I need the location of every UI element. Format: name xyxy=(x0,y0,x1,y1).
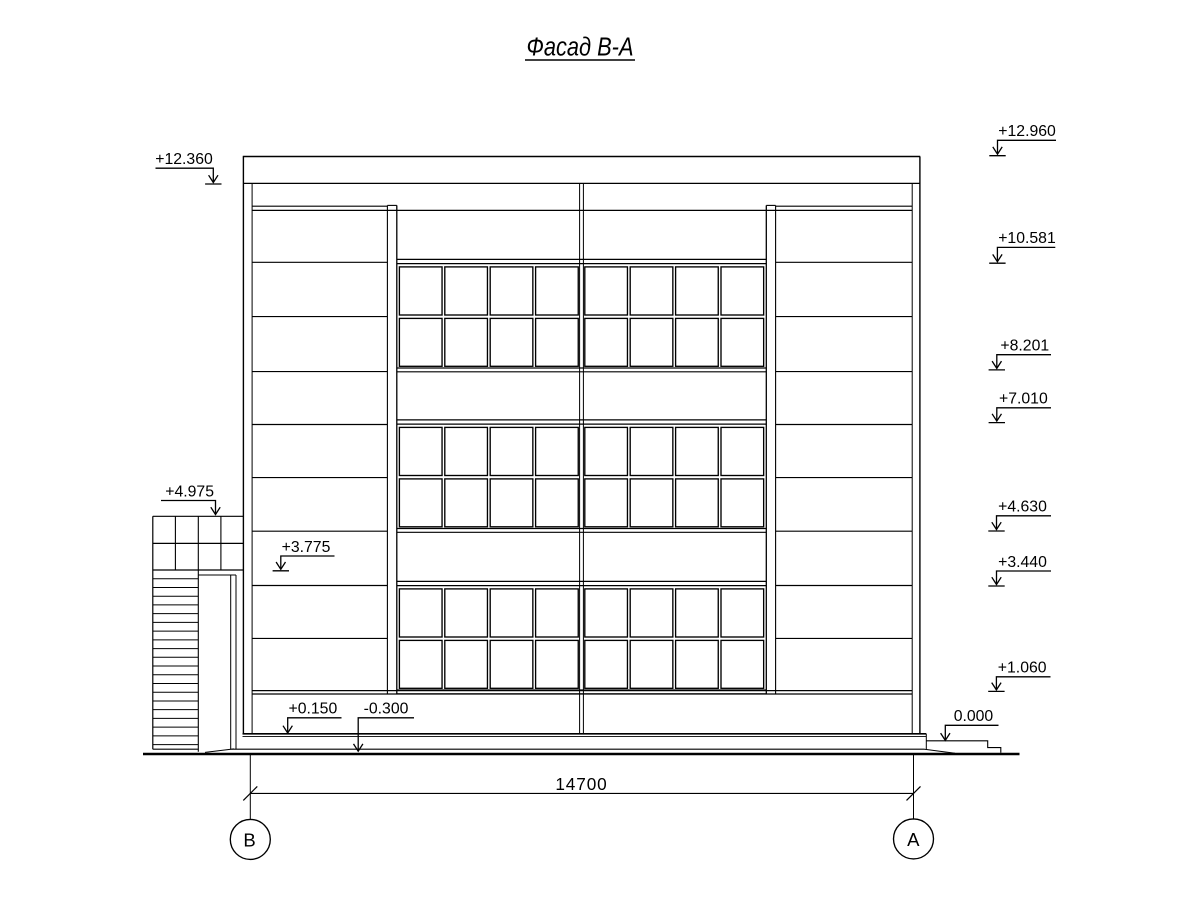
svg-text:+7.010: +7.010 xyxy=(999,391,1048,408)
svg-text:+4.975: +4.975 xyxy=(165,483,214,500)
svg-text:+3.775: +3.775 xyxy=(282,539,331,556)
svg-text:+8.201: +8.201 xyxy=(1000,338,1049,355)
svg-text:В: В xyxy=(243,829,255,850)
svg-text:+12.960: +12.960 xyxy=(998,123,1056,140)
svg-text:+12.360: +12.360 xyxy=(155,151,213,168)
svg-text:+4.630: +4.630 xyxy=(998,499,1047,516)
svg-text:14700: 14700 xyxy=(555,774,607,794)
svg-text:+3.440: +3.440 xyxy=(998,554,1047,571)
svg-text:0.000: 0.000 xyxy=(954,708,994,725)
svg-text:-0.300: -0.300 xyxy=(364,701,409,718)
svg-text:+0.150: +0.150 xyxy=(289,701,338,718)
svg-text:А: А xyxy=(907,829,920,850)
svg-text:+1.060: +1.060 xyxy=(998,660,1047,677)
svg-text:+10.581: +10.581 xyxy=(998,230,1056,247)
svg-text:Фасад В-А: Фасад В-А xyxy=(527,34,634,62)
